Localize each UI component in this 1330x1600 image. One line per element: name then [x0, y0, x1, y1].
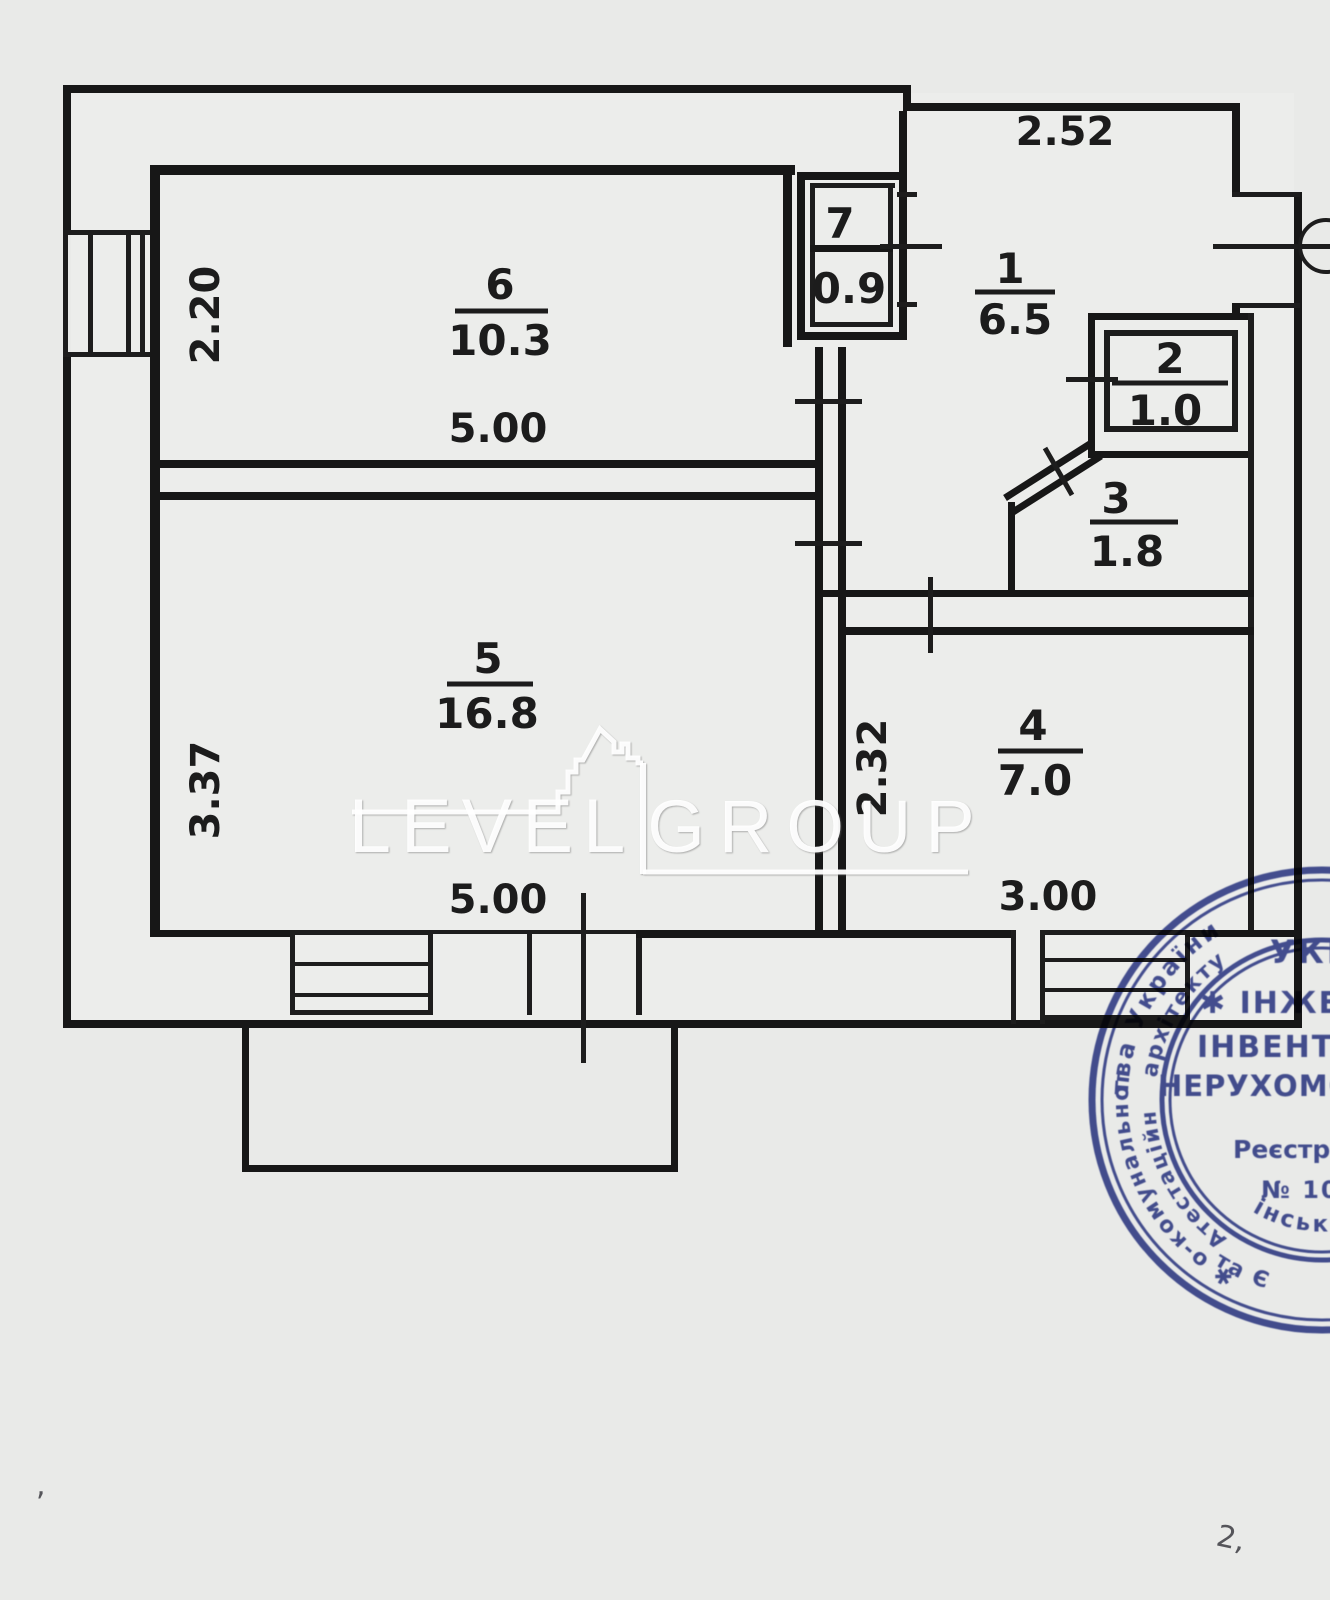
stamp-center-line: УКР	[1270, 933, 1330, 971]
wall-top-outer	[63, 85, 908, 93]
window-line	[290, 993, 433, 997]
wall-6-5-divider-b	[150, 492, 818, 500]
wall-left-upper	[63, 85, 71, 233]
wall-room6-5-left	[150, 165, 160, 937]
stamp-center-line: НЕРУХОМО	[1158, 1069, 1330, 1103]
wall-hall-left-upper	[899, 111, 907, 197]
balcony-bottom	[242, 1165, 678, 1172]
door-jamb	[897, 192, 917, 197]
room-area: 1.0	[1128, 386, 1202, 435]
wall-room7-top	[797, 172, 907, 180]
wall-room2-top	[1088, 313, 1252, 320]
door-tick-room5	[795, 541, 862, 546]
room7-inner-line	[810, 322, 893, 327]
room-area: 10.3	[448, 316, 552, 365]
wall-room1-right	[1232, 103, 1240, 197]
window-line	[63, 352, 150, 357]
window-line	[63, 230, 68, 357]
wall-room3-bottom	[1008, 590, 1254, 597]
room-number: 4	[1018, 701, 1047, 750]
balcony-door-leaf	[581, 893, 586, 1063]
window-line	[290, 962, 433, 966]
room-area: 1.8	[1090, 527, 1164, 576]
wall-room2-bottom	[1088, 451, 1252, 458]
wall-bottom-inner	[160, 930, 290, 937]
room7-inner-line	[888, 183, 893, 327]
wall-hall-bottom	[815, 590, 1008, 597]
floor-plan-scan: 6 10.3 5.00 2.20 5 16.8 5.00 3.37 7 0.9 …	[0, 0, 1330, 1600]
wall-edge	[1011, 930, 1016, 1024]
room2-inner-line	[1232, 330, 1238, 432]
opening-edge	[636, 930, 642, 1015]
wall-room3-left	[1008, 502, 1015, 597]
door-tick-room2	[1066, 377, 1118, 382]
wall-edge	[1040, 930, 1045, 1024]
scan-speck: ,	[36, 1468, 46, 1503]
wall-right-outer	[1294, 192, 1302, 1028]
room-number: 3	[1101, 474, 1130, 523]
door-tick-room4	[928, 577, 933, 653]
room-number: 7	[825, 199, 854, 248]
wall-right-inner	[1248, 313, 1254, 935]
dimension-label: 2.20	[183, 266, 229, 365]
balcony-left	[242, 1028, 249, 1172]
wall-room7-right	[899, 172, 907, 340]
room-number: 5	[473, 634, 502, 683]
opening-edge	[527, 930, 532, 1015]
room-number: 1	[995, 244, 1024, 293]
entrance-jamb-top	[1232, 192, 1300, 197]
door-jamb	[897, 302, 917, 307]
dimension-label: 3.37	[183, 741, 229, 840]
room-number: 2	[1155, 334, 1184, 383]
window-line	[63, 230, 150, 235]
stamp-center-line: ІНВЕНТА	[1197, 1030, 1330, 1065]
room-area: 0.9	[812, 264, 886, 313]
window-line	[428, 930, 433, 1015]
window-line	[140, 230, 145, 357]
wall-bottom-inner	[636, 930, 1016, 938]
room7-inner-line	[810, 183, 895, 188]
door-tick-room7	[880, 244, 942, 249]
balcony-right	[671, 1028, 678, 1172]
dimension-label: 3.00	[999, 874, 1098, 920]
dimension-label: 2.52	[1016, 109, 1115, 155]
wall-6-5-divider-a	[150, 460, 818, 468]
floor-plan-canvas: 6 10.3 5.00 2.20 5 16.8 5.00 3.37 7 0.9 …	[0, 0, 1330, 1600]
wall-room6-top	[150, 165, 795, 175]
window-line	[290, 930, 295, 1015]
window-line	[290, 1010, 433, 1015]
window-line	[88, 230, 93, 357]
stamp-center-line: ✱ ІНЖЕ	[1200, 986, 1330, 1021]
dimension-label: 5.00	[449, 877, 548, 923]
wall-room7-left	[797, 172, 805, 340]
watermark-brand-left: LEVEL	[349, 784, 636, 869]
room-area: 6.5	[978, 295, 1052, 344]
window-line	[290, 930, 433, 935]
opening-edge	[433, 930, 638, 934]
entrance-door-leaf	[1213, 244, 1330, 249]
room-area: 7.0	[998, 756, 1072, 805]
room-number: 6	[485, 260, 514, 309]
wall-room2-left	[1088, 313, 1095, 458]
stamp-center-line: № 10	[1261, 1176, 1330, 1204]
wall-left-lower	[63, 357, 71, 1028]
stamp-center-line: Реєстра	[1233, 1135, 1330, 1164]
window-line	[126, 230, 131, 357]
watermark-brand-right: GROUP	[647, 785, 988, 868]
entrance-jamb-bottom	[1232, 303, 1300, 308]
dimension-label: 5.00	[449, 406, 548, 452]
wall-room4-top	[838, 627, 1254, 635]
door-tick-room6	[795, 399, 862, 404]
room-area: 16.8	[435, 689, 539, 738]
wall-room7-left-outer	[783, 172, 792, 347]
wall-room7-bottom	[797, 332, 907, 340]
